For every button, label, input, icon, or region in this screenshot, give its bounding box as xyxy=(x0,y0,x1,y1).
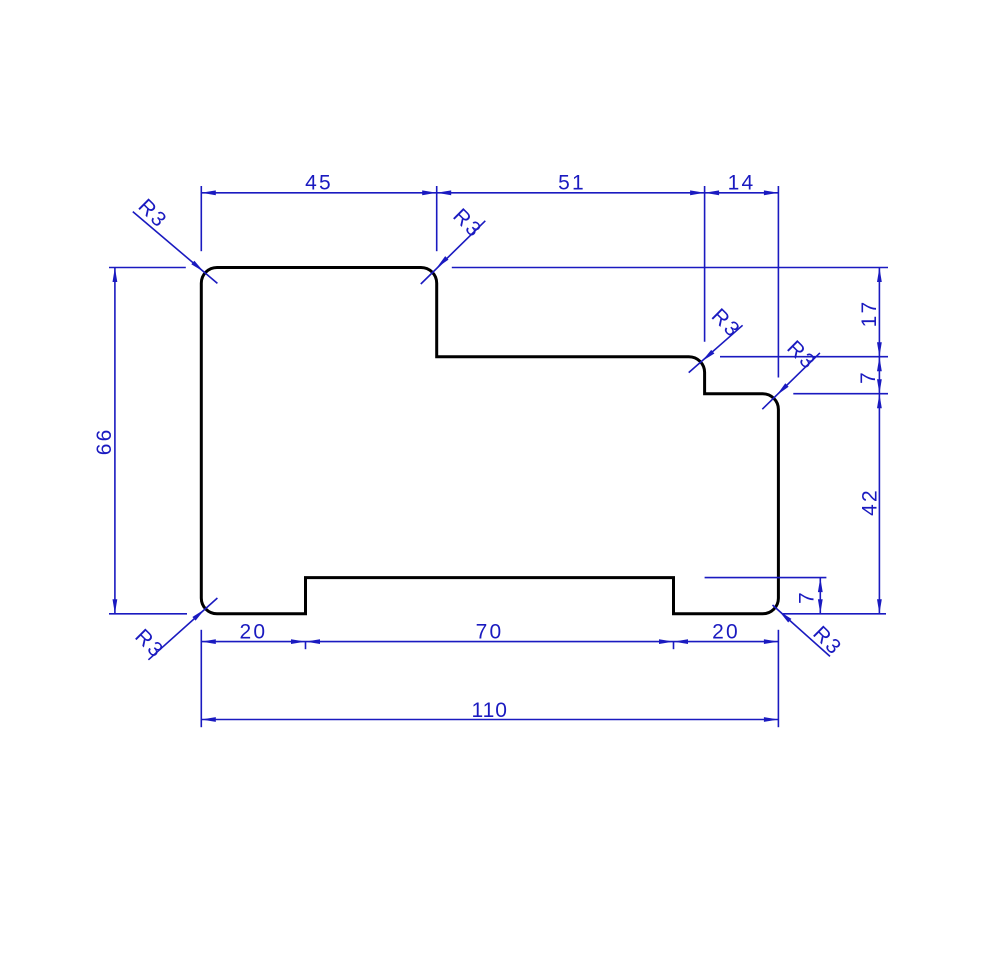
svg-text:R3: R3 xyxy=(130,625,168,663)
svg-text:R3: R3 xyxy=(448,204,486,242)
svg-text:17: 17 xyxy=(858,300,881,328)
svg-text:7: 7 xyxy=(857,370,880,384)
svg-text:110: 110 xyxy=(471,699,507,722)
svg-text:R3: R3 xyxy=(134,195,172,233)
svg-text:14: 14 xyxy=(728,172,756,195)
svg-text:70: 70 xyxy=(476,621,504,644)
svg-text:R3: R3 xyxy=(782,336,820,374)
svg-text:R3: R3 xyxy=(808,622,846,660)
svg-text:R3: R3 xyxy=(707,304,745,342)
svg-text:66: 66 xyxy=(93,427,116,455)
svg-text:51: 51 xyxy=(558,172,586,195)
svg-text:7: 7 xyxy=(796,590,819,604)
svg-text:20: 20 xyxy=(240,621,268,644)
svg-text:20: 20 xyxy=(712,621,740,644)
svg-text:45: 45 xyxy=(305,172,333,195)
svg-text:42: 42 xyxy=(859,488,882,516)
